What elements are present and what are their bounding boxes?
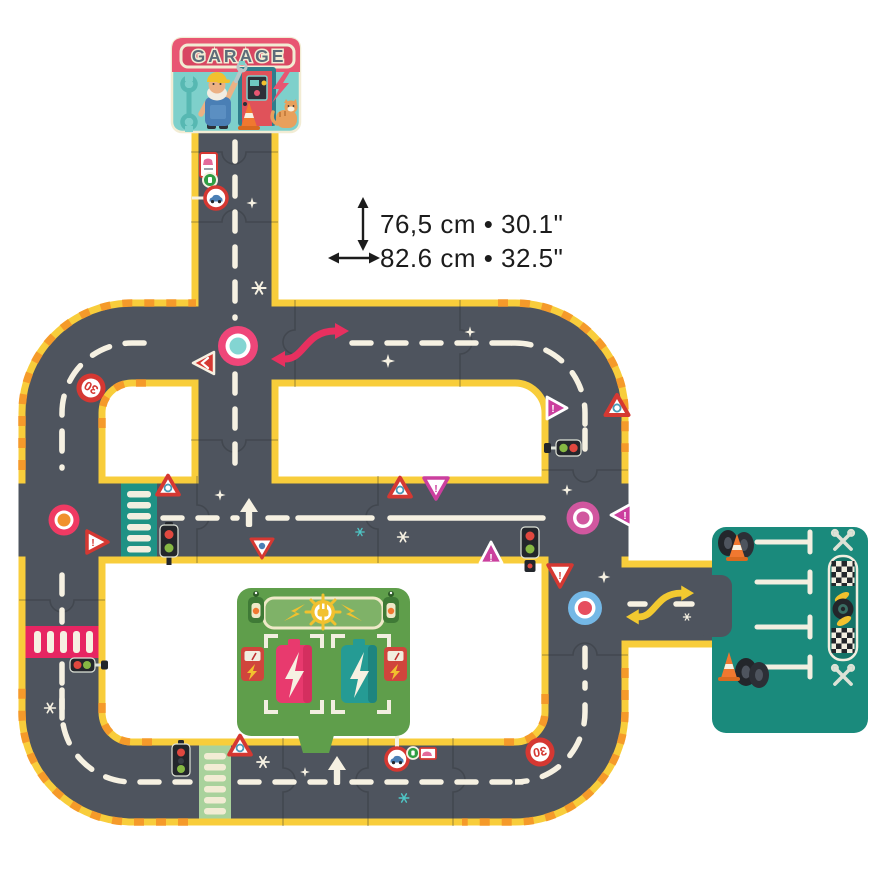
arrow-right-icon: [369, 253, 380, 264]
checkered-flag-bottom: [832, 628, 855, 653]
roundabout-marker-blue: [568, 591, 602, 625]
roundabout-sign-4: [229, 736, 251, 755]
speed-limit-sign-bottom-right: 30: [526, 738, 554, 766]
svg-text:!: !: [91, 537, 95, 549]
station-tab: [298, 735, 334, 753]
roundabout-marker-pink: [218, 326, 258, 366]
parking-entry-tab: [698, 575, 732, 637]
crosswalk-teal: [121, 484, 157, 557]
arrow-up-icon: [358, 197, 369, 208]
garage-door: [238, 67, 276, 126]
svg-text:!: !: [434, 483, 438, 495]
garage-building: GARAGE: [172, 38, 300, 132]
traffic-light-bottom-road: [172, 740, 190, 776]
roundabout-marker-orange: [49, 505, 80, 536]
arrow-down-icon: [358, 240, 369, 251]
svg-text:!: !: [551, 403, 555, 415]
height-label: 76,5 cm • 30.1": [380, 209, 563, 239]
station-banner: [264, 595, 383, 629]
svg-text:!: !: [623, 510, 627, 522]
charging-station: [237, 588, 410, 753]
race-capsule: [829, 556, 857, 660]
battery-teal: [341, 639, 377, 703]
crosswalk-pink: [26, 626, 99, 658]
crosswalk-green: [199, 746, 231, 819]
traffic-light-middle-right: [521, 527, 539, 572]
svg-text:!: !: [489, 552, 493, 564]
parking-area: [698, 527, 868, 733]
svg-text:30: 30: [532, 743, 548, 759]
arrow-left-icon: [328, 253, 339, 264]
checkered-flag-top: [832, 561, 855, 586]
illustration-canvas: ! ! ! ! ! ! 30 30: [0, 0, 881, 881]
charging-pump-left: [241, 647, 264, 681]
battery-pink: [276, 639, 312, 703]
roundabout-marker-magenta: [567, 502, 600, 535]
charging-pump-right: [384, 647, 407, 681]
width-label: 82.6 cm • 32.5": [380, 243, 563, 273]
svg-text:!: !: [558, 570, 562, 582]
road-puzzle-product-image: ! ! ! ! ! ! 30 30: [0, 0, 881, 881]
